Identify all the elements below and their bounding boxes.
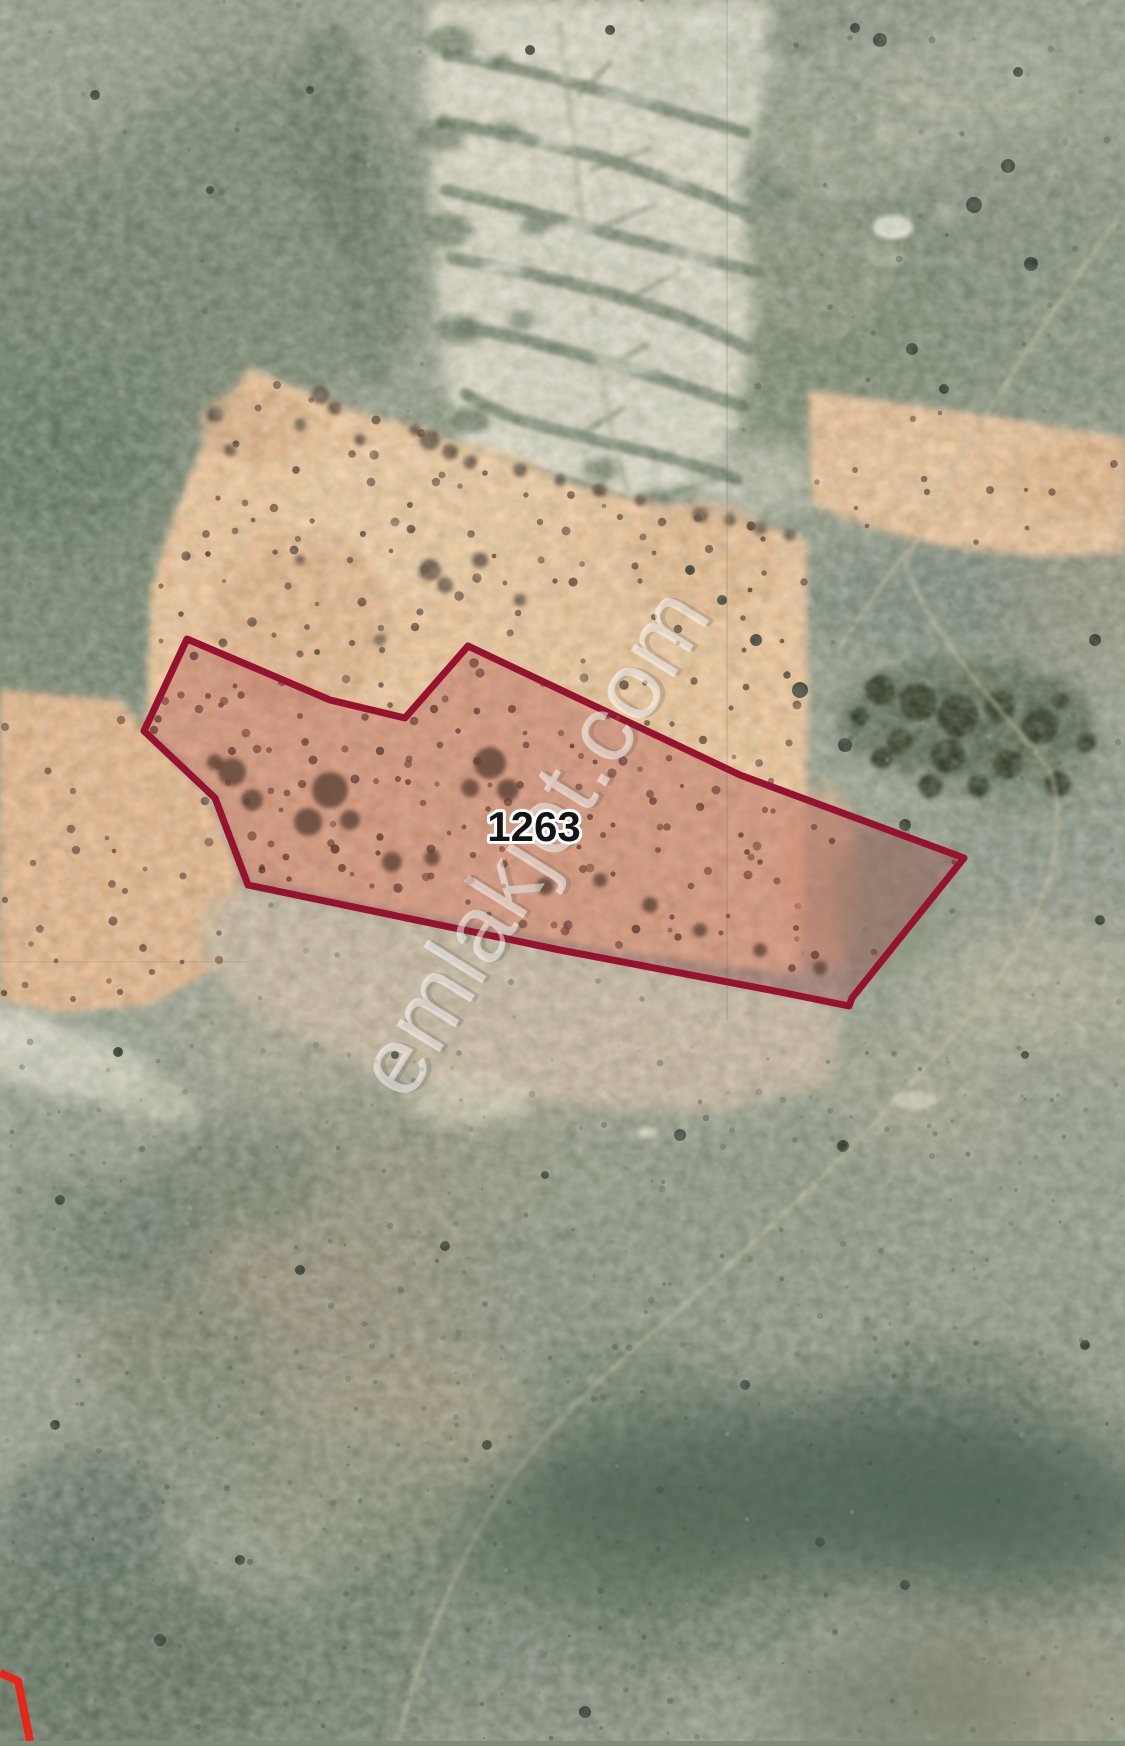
svg-text:1263: 1263 — [487, 803, 580, 850]
